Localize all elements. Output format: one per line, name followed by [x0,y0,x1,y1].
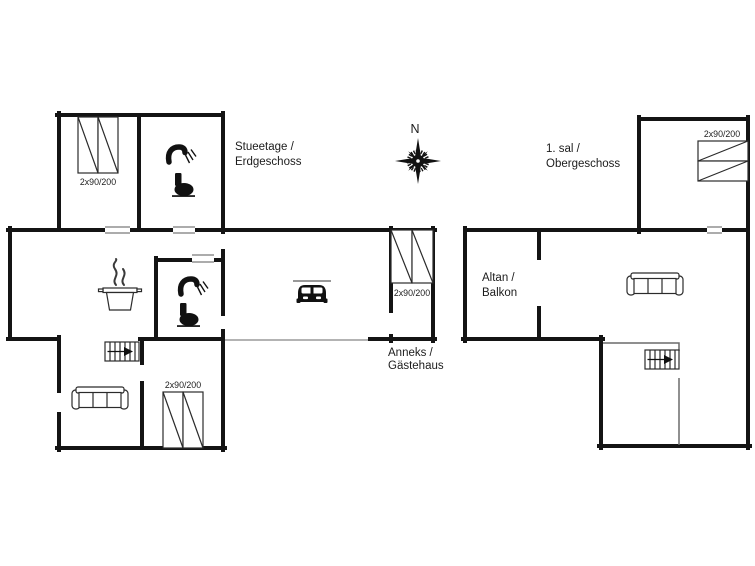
double-bed-icon [698,141,748,181]
upper-floor-title-line2: Obergeschoss [546,158,620,170]
double-bed-icon [391,230,433,283]
ground-floor-title-line1: Stueetage / [235,141,295,153]
door-opening [105,226,130,235]
compass-north-label: N [410,122,419,136]
door-opening [707,226,722,235]
stairs-icon [105,342,139,361]
door-opening [173,226,195,235]
stairs-icon [645,350,679,369]
upper-floor-title-line1: 1. sal / [546,143,581,155]
sofa-icon [72,387,128,409]
bed-size-label: 2x90/200 [394,288,430,298]
balcony-label-line1: Altan / [482,272,515,284]
annex-label-line2: Gästehaus [388,360,444,372]
bed-size-label: 2x90/200 [704,129,740,139]
door-opening [192,254,214,263]
double-bed-icon [78,117,118,173]
sofa-icon [627,273,683,295]
floorplan-page: 2x90/200 2x90/200 Stueetage / Erdgeschos… [0,0,755,566]
floorplan-svg: 2x90/200 2x90/200 Stueetage / Erdgeschos… [0,0,755,566]
double-bed-icon [163,392,203,448]
balcony-label-line2: Balkon [482,287,517,299]
ground-floor-title-line2: Erdgeschoss [235,156,302,168]
annex-label-line1: Anneks / [388,347,434,359]
bed-size-label: 2x90/200 [80,177,116,187]
bed-size-label: 2x90/200 [165,380,201,390]
